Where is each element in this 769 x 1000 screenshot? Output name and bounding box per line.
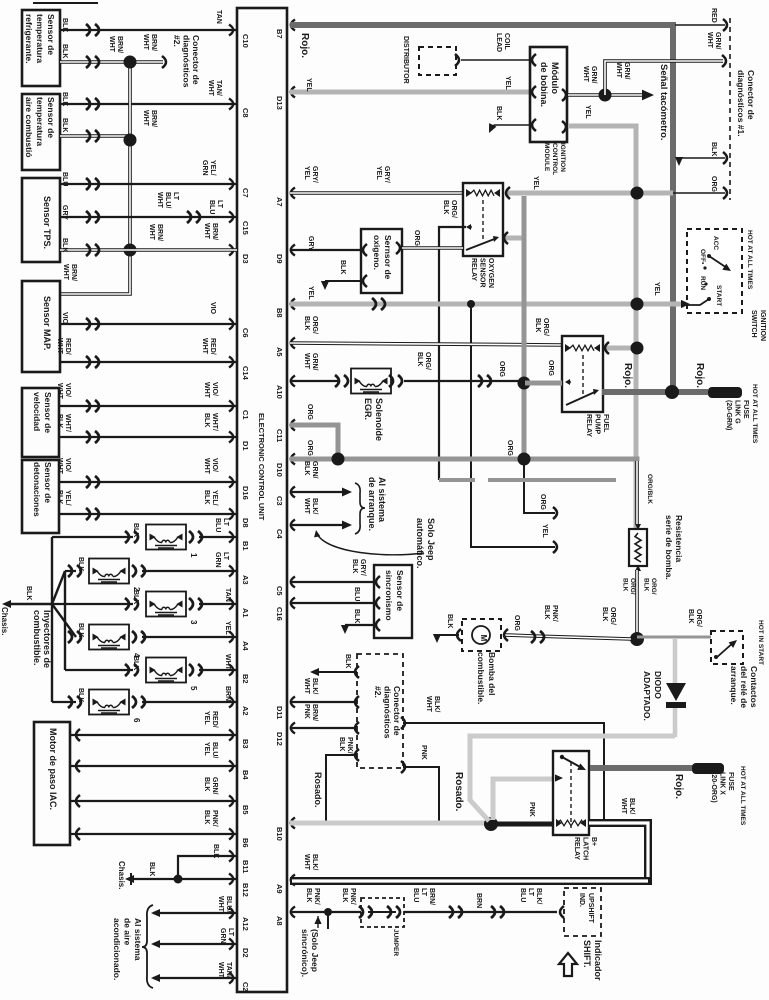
svg-text:Resistencia: Resistencia (674, 515, 684, 563)
svg-text:detonaciones: detonaciones (32, 462, 42, 517)
svg-text:LT: LT (216, 200, 223, 209)
svg-text:D16: D16 (241, 486, 250, 500)
svg-text:Rojo.: Rojo. (694, 363, 705, 388)
svg-text:ORG: ORG (710, 176, 717, 193)
svg-text:6: 6 (132, 718, 141, 723)
svg-text:WHT: WHT (108, 36, 115, 53)
svg-text:ORG: ORG (306, 440, 313, 457)
svg-text:C3: C3 (275, 496, 284, 506)
svg-text:de aire: de aire (123, 918, 133, 946)
svg-text:WHT/: WHT/ (64, 414, 71, 432)
svg-text:Motor de paso IAC.: Motor de paso IAC. (48, 728, 58, 810)
svg-text:diagnósticos: diagnósticos (182, 35, 192, 88)
svg-text:BLK: BLK (534, 318, 541, 332)
svg-text:WHT/: WHT/ (211, 413, 218, 431)
svg-text:IND.: IND. (578, 893, 585, 907)
svg-text:BRN/: BRN/ (428, 888, 435, 905)
svg-text:C10: C10 (241, 34, 250, 48)
svg-text:B2: B2 (241, 674, 250, 684)
svg-text:diagnósticos: diagnósticos (383, 686, 393, 739)
svg-text:BRN/: BRN/ (150, 110, 157, 127)
svg-text:RED/: RED/ (209, 338, 216, 355)
svg-text:B12: B12 (241, 883, 250, 897)
svg-text:Contactos: Contactos (749, 666, 759, 708)
svg-text:BLK: BLK (77, 557, 84, 571)
svg-text:VIO/: VIO/ (64, 458, 71, 472)
svg-text:BRN/: BRN/ (116, 36, 123, 53)
svg-text:Conector de: Conector de (392, 686, 402, 736)
svg-text:BLK: BLK (61, 44, 68, 58)
svg-text:COIL: COIL (503, 33, 510, 50)
svg-text:BLK: BLK (543, 605, 550, 619)
svg-text:WHT: WHT (303, 498, 310, 515)
svg-text:de arranque.: de arranque. (367, 477, 377, 531)
svg-text:refrigerante.: refrigerante. (24, 14, 34, 64)
svg-text:BLK: BLK (203, 810, 210, 824)
svg-text:ORG: ORG (413, 230, 420, 247)
svg-text:C2: C2 (241, 982, 250, 992)
svg-text:B5: B5 (241, 805, 250, 815)
svg-text:A8: A8 (275, 916, 284, 926)
svg-text:BLK: BLK (25, 586, 32, 600)
svg-text:BLK: BLK (61, 92, 68, 106)
svg-text:acondicionado.: acondicionado. (112, 918, 122, 980)
svg-text:(Solo Jeep: (Solo Jeep (310, 929, 320, 972)
svg-text:(20-ORG): (20-ORG) (710, 772, 717, 803)
svg-text:OFF•: OFF• (699, 249, 706, 265)
svg-text:BLK/: BLK/ (433, 696, 440, 712)
svg-text:BLU/: BLU/ (211, 742, 218, 758)
svg-text:C14: C14 (241, 366, 250, 381)
svg-text:C7: C7 (241, 188, 250, 198)
svg-text:Indicador: Indicador (593, 940, 603, 981)
svg-text:YEL: YEL (653, 282, 660, 296)
svg-text:C16: C16 (275, 607, 284, 621)
svg-text:RELAY: RELAY (573, 837, 580, 860)
svg-text:B1: B1 (241, 541, 250, 551)
svg-text:C6: C6 (241, 328, 250, 338)
svg-text:BLU: BLU (519, 888, 526, 902)
svg-text:BLK: BLK (203, 490, 210, 504)
svg-text:HOT IN START: HOT IN START (757, 620, 764, 665)
svg-text:D13: D13 (275, 96, 284, 110)
svg-text:WHT: WHT (224, 654, 231, 671)
svg-text:B4: B4 (241, 770, 250, 780)
svg-text:C4: C4 (275, 529, 284, 539)
svg-text:BRN/: BRN/ (311, 704, 318, 721)
svg-text:del relé de: del relé de (739, 666, 749, 708)
svg-text:#2.: #2. (373, 686, 383, 698)
svg-text:A2: A2 (241, 706, 250, 716)
svg-text:BLK: BLK (203, 413, 210, 427)
svg-text:BLU/: BLU/ (164, 192, 171, 208)
svg-text:ORG: ORG (513, 615, 520, 632)
svg-text:BLK/: BLK/ (628, 798, 635, 814)
svg-text:Bomba del: Bomba del (487, 652, 497, 695)
svg-text:BLU: BLU (353, 587, 360, 601)
svg-text:PNK/: PNK/ (313, 888, 320, 905)
svg-text:BLK: BLK (61, 118, 68, 132)
svg-text:ADAPTADO.: ADAPTADO. (642, 671, 652, 721)
svg-text:PNK/: PNK/ (349, 888, 356, 905)
svg-text:D11: D11 (275, 706, 284, 719)
svg-text:Conector de: Conector de (191, 35, 201, 85)
svg-text:SENSOR: SENSOR (479, 258, 486, 288)
svg-text:automático.: automático. (415, 518, 425, 569)
svg-text:Inyectores de: Inyectores de (42, 610, 52, 668)
svg-text:BLK: BLK (601, 607, 608, 621)
svg-text:FUSE: FUSE (742, 400, 749, 419)
svg-text:ORG/: ORG/ (311, 316, 318, 334)
svg-text:WHT: WHT (615, 62, 622, 79)
svg-text:YEL: YEL (541, 524, 548, 538)
svg-text:ORG/: ORG/ (609, 607, 616, 625)
svg-text:temperatura: temperatura (35, 14, 45, 63)
svg-text:A3: A3 (241, 575, 250, 585)
svg-text:ACC: ACC (712, 236, 719, 250)
svg-text:EGR.: EGR. (363, 398, 373, 420)
svg-text:Rosado.: Rosado. (313, 772, 323, 808)
svg-text:PNK/: PNK/ (551, 605, 558, 622)
svg-text:Sensor de: Sensor de (46, 14, 56, 55)
svg-text:BLK: BLK (353, 609, 360, 623)
svg-text:VIO/: VIO/ (211, 458, 218, 472)
svg-text:WHT: WHT (203, 382, 210, 399)
svg-text:WHT: WHT (303, 678, 310, 695)
svg-text:B7: B7 (275, 29, 284, 39)
svg-text:Solenoide: Solenoide (374, 398, 384, 441)
svg-text:YEL: YEL (584, 105, 591, 119)
svg-text:BRN/: BRN/ (156, 224, 163, 241)
svg-text:WHT: WHT (203, 223, 210, 240)
svg-text:PNK: PNK (528, 802, 535, 817)
svg-text:DISTRIBUTOR: DISTRIBUTOR (402, 36, 409, 84)
svg-text:WHT: WHT (142, 110, 149, 127)
svg-text:Sensor de: Sensor de (43, 392, 53, 433)
svg-text:BLU/: BLU/ (225, 896, 232, 912)
svg-text:LT: LT (527, 888, 534, 897)
svg-text:LT: LT (420, 888, 427, 897)
svg-text:Sensor de: Sensor de (395, 570, 405, 611)
svg-text:Rojo.: Rojo. (673, 774, 684, 799)
svg-text:WHT: WHT (582, 66, 589, 83)
svg-text:LT: LT (227, 928, 234, 937)
svg-text:BLK: BLK (212, 844, 219, 858)
svg-text:LINK G: LINK G (734, 400, 741, 424)
svg-text:A7: A7 (275, 197, 284, 207)
svg-text:BLK: BLK (77, 688, 84, 702)
svg-text:BLK: BLK (132, 523, 139, 537)
svg-text:WHT: WHT (217, 962, 224, 979)
svg-text:VIO: VIO (61, 312, 68, 325)
svg-text:GRN: GRN (214, 552, 221, 568)
svg-text:WHT: WHT (62, 264, 69, 281)
svg-text:YEL: YEL (532, 176, 539, 190)
svg-text:oxigeno.: oxigeno. (372, 235, 382, 270)
svg-text:YEL/: YEL/ (211, 490, 218, 506)
svg-text:ORG/: ORG/ (424, 352, 431, 370)
svg-text:BLU: BLU (208, 200, 215, 214)
svg-text:BLK: BLK (61, 18, 68, 32)
svg-text:ORG: ORG (498, 361, 505, 378)
svg-text:Rojo.: Rojo. (622, 363, 633, 388)
svg-text:WHT: WHT (207, 80, 214, 97)
svg-text:BRN/: BRN/ (211, 223, 218, 240)
svg-text:GRN: GRN (219, 928, 226, 944)
svg-text:(20-GRN): (20-GRN) (725, 400, 732, 430)
svg-text:OXYGEN: OXYGEN (487, 258, 494, 288)
svg-text:ORG: ORG (547, 360, 554, 377)
svg-text:Chasis.: Chasis. (117, 861, 126, 889)
svg-text:GRN/: GRN/ (623, 62, 630, 80)
svg-text:ORG/: ORG/ (629, 578, 636, 595)
svg-text:WHT: WHT (56, 338, 63, 355)
svg-text:GRY/: GRY/ (383, 166, 390, 183)
svg-text:UPSHIFT: UPSHIFT (587, 893, 594, 924)
svg-text:WHT: WHT (142, 34, 149, 51)
svg-text:RED: RED (710, 8, 717, 23)
svg-text:BLU: BLU (61, 172, 68, 186)
svg-text:BLK: BLK (341, 888, 348, 902)
svg-text:Módulo: Módulo (550, 62, 560, 94)
svg-text:BLK: BLK (148, 862, 155, 876)
svg-text:GRN/: GRN/ (311, 353, 318, 371)
svg-text:WHT: WHT (56, 458, 63, 475)
svg-text:GRY/: GRY/ (359, 559, 366, 576)
svg-text:de bobina.: de bobina. (539, 62, 549, 107)
svg-text:GRN/: GRN/ (590, 66, 597, 84)
svg-text:BLK: BLK (132, 590, 139, 604)
svg-text:Chasis.: Chasis. (0, 607, 9, 635)
svg-text:YEL: YEL (305, 78, 312, 92)
svg-text:5: 5 (189, 686, 198, 691)
svg-text:GRY: GRY (307, 236, 314, 251)
svg-text:YEL: YEL (203, 742, 210, 756)
svg-text:WHT: WHT (56, 383, 63, 400)
svg-text:YEL: YEL (303, 166, 310, 180)
svg-text:1: 1 (189, 553, 198, 558)
svg-text:ORG/: ORG/ (450, 200, 457, 218)
svg-text:WHT: WHT (217, 896, 224, 913)
svg-text:CONTROL: CONTROL (551, 143, 558, 175)
svg-text:BLK: BLK (710, 142, 717, 156)
svg-text:GRN: GRN (201, 160, 208, 176)
svg-text:ORG: ORG (306, 404, 313, 421)
svg-text:BLK: BLK (132, 656, 139, 670)
svg-text:HOT AT ALL TIMES: HOT AT ALL TIMES (751, 384, 758, 444)
svg-text:RED/: RED/ (64, 338, 71, 355)
svg-text:BLK: BLK (446, 614, 453, 628)
svg-text:B3: B3 (241, 739, 250, 749)
svg-text:BLK: BLK (61, 238, 68, 252)
svg-text:WHT: WHT (201, 338, 208, 355)
svg-text:VIO: VIO (209, 302, 216, 315)
svg-text:C15: C15 (241, 221, 250, 235)
svg-text:BLK: BLK (339, 260, 346, 274)
svg-text:ORG/BLK: ORG/BLK (646, 474, 653, 504)
svg-text:Sernsor de: Sernsor de (383, 235, 393, 280)
svg-text:BLK: BLK (303, 316, 310, 330)
svg-text:Sensor TPS.: Sensor TPS. (42, 196, 52, 249)
svg-text:RED/: RED/ (211, 711, 218, 728)
svg-text:A9: A9 (275, 884, 284, 894)
svg-text:A5: A5 (275, 347, 284, 357)
svg-text:ORG/: ORG/ (650, 578, 657, 595)
svg-text:BLK: BLK (442, 200, 449, 214)
svg-text:BLK/: BLK/ (311, 854, 318, 870)
svg-text:ELECTRONIC CONTROL UNIT: ELECTRONIC CONTROL UNIT (257, 413, 266, 521)
svg-text:WHT: WHT (203, 458, 210, 475)
svg-text:TAN/: TAN/ (215, 80, 222, 96)
svg-text:BLK: BLK (416, 352, 423, 366)
svg-text:D8: D8 (241, 518, 250, 528)
svg-text:C11: C11 (275, 429, 284, 442)
svg-text:BLK: BLK (56, 414, 63, 428)
svg-text:GRY: GRY (61, 205, 68, 220)
svg-text:GRN/: GRN/ (714, 32, 721, 50)
svg-text:diagnósticos #1.: diagnósticos #1. (736, 70, 746, 137)
svg-text:A4: A4 (241, 641, 250, 651)
svg-text:HOT AT ALL TIMES: HOT AT ALL TIMES (746, 230, 753, 290)
svg-text:Al sistema: Al sistema (377, 477, 387, 523)
svg-text:C1: C1 (241, 410, 250, 420)
svg-text:BRN/: BRN/ (70, 264, 77, 281)
svg-text:B6: B6 (241, 838, 250, 848)
svg-text:BLK: BLK (344, 654, 351, 668)
svg-text:Al sistema: Al sistema (133, 918, 143, 961)
svg-text:B11: B11 (241, 860, 250, 873)
svg-text:VIO/: VIO/ (64, 383, 71, 397)
svg-text:PNK/: PNK/ (211, 810, 218, 827)
svg-text:LEAD: LEAD (495, 33, 502, 52)
svg-text:LATCH: LATCH (582, 837, 589, 860)
svg-text:A1: A1 (241, 608, 250, 618)
svg-text:LT: LT (222, 518, 229, 527)
svg-text:SHIFT.: SHIFT. (582, 940, 592, 968)
svg-text:ORG/: ORG/ (695, 609, 702, 627)
svg-text:MODULE: MODULE (543, 143, 550, 172)
svg-text:C8: C8 (241, 108, 250, 118)
svg-text:VIO/: VIO/ (211, 382, 218, 396)
svg-text:B8: B8 (275, 308, 284, 318)
svg-text:BLU: BLU (412, 888, 419, 902)
svg-text:D1: D1 (241, 441, 250, 451)
svg-text:LT: LT (172, 192, 179, 201)
svg-text:BRN: BRN (475, 893, 482, 908)
svg-text:A10: A10 (275, 385, 284, 399)
svg-text:sincrónico).: sincrónico). (300, 929, 310, 977)
svg-text:BLK: BLK (338, 737, 345, 751)
svg-text:YEL: YEL (375, 166, 382, 180)
svg-text:SWITCH: SWITCH (750, 310, 757, 338)
svg-text:Conector de: Conector de (746, 70, 756, 120)
svg-text:JUMPER: JUMPER (392, 929, 399, 956)
svg-text:B+: B+ (590, 837, 597, 846)
svg-text:D9: D9 (275, 254, 284, 264)
svg-text:D3: D3 (241, 254, 250, 264)
svg-text:Sensor MAP.: Sensor MAP. (42, 296, 52, 350)
svg-text:sincronismo: sincronismo (384, 570, 394, 621)
svg-text:WHT: WHT (303, 854, 310, 871)
svg-text:velocidad: velocidad (32, 392, 42, 431)
svg-text:Solo Jeep: Solo Jeep (426, 518, 436, 561)
svg-text:GRN/: GRN/ (311, 461, 318, 479)
svg-text:BLK: BLK (203, 777, 210, 791)
svg-text:ORG: ORG (539, 494, 546, 511)
svg-text:WHT: WHT (425, 696, 432, 713)
svg-text:BLK: BLK (303, 461, 310, 475)
svg-text:3: 3 (189, 620, 198, 625)
svg-text:C5: C5 (275, 586, 284, 596)
svg-text:PNK/: PNK/ (346, 737, 353, 754)
svg-text:BLK: BLK (622, 578, 629, 592)
svg-text:WHT: WHT (706, 32, 713, 49)
svg-text:Rosado.: Rosado. (453, 772, 464, 812)
svg-text:BRN: BRN (224, 686, 231, 701)
svg-text:D2: D2 (241, 948, 250, 958)
svg-text:temperatura: temperatura (35, 97, 45, 146)
svg-text:RELAY: RELAY (585, 414, 592, 437)
svg-text:combustible.: combustible. (476, 652, 486, 704)
svg-text:BLK: BLK (495, 106, 502, 120)
svg-text:IGNITION: IGNITION (759, 310, 766, 341)
svg-text:BRN/: BRN/ (150, 34, 157, 51)
svg-text:M: M (479, 635, 488, 642)
svg-text:YEL: YEL (203, 711, 210, 725)
svg-text:BLK/: BLK/ (311, 498, 318, 514)
svg-text:DIODO: DIODO (653, 671, 663, 699)
svg-text:RELAY: RELAY (470, 258, 477, 281)
svg-text:BLU: BLU (214, 518, 221, 532)
svg-text:BLK: BLK (77, 623, 84, 637)
svg-text:TAN: TAN (215, 10, 222, 24)
svg-text:WHT: WHT (148, 224, 155, 241)
svg-text:WHT: WHT (303, 353, 310, 370)
svg-text:A12: A12 (241, 917, 250, 931)
svg-text:PUMP: PUMP (594, 414, 601, 435)
svg-text:Señal tacómetro.: Señal tacómetro. (658, 64, 669, 141)
svg-text:PNK: PNK (303, 704, 310, 719)
svg-text:TAN/: TAN/ (225, 962, 232, 978)
svg-text:aire combustió: aire combustió (24, 97, 34, 157)
svg-text:YEL: YEL (224, 621, 231, 635)
svg-text:YEL/: YEL/ (209, 160, 216, 176)
svg-text:D12: D12 (275, 732, 284, 746)
svg-text:HOT AT ALL TIMES: HOT AT ALL TIMES (739, 766, 746, 826)
svg-text:arranque.: arranque. (729, 666, 739, 705)
svg-text:BLK/: BLK/ (311, 678, 318, 694)
svg-text:ORG: ORG (506, 440, 513, 457)
svg-text:LINK X: LINK X (719, 772, 726, 795)
svg-text:BLK: BLK (687, 609, 694, 623)
svg-text:Sensor de: Sensor de (43, 462, 53, 503)
svg-text:START: START (715, 285, 722, 306)
svg-text:Sensor de: Sensor de (46, 97, 56, 138)
svg-text:GRY/: GRY/ (311, 166, 318, 183)
svg-text:GRN/: GRN/ (211, 777, 218, 795)
svg-text:BLK: BLK (643, 578, 650, 592)
svg-text:BLK: BLK (351, 559, 358, 573)
svg-text:B10: B10 (275, 827, 284, 841)
svg-text:LT: LT (222, 552, 229, 561)
svg-text:FUEL: FUEL (602, 414, 609, 433)
svg-text:FUSE: FUSE (727, 772, 734, 791)
svg-text:YEL: YEL (307, 286, 314, 300)
svg-text:BLK/: BLK/ (535, 888, 542, 904)
svg-text:combustible.: combustible. (32, 610, 42, 666)
svg-text:serie de bomba.: serie de bomba. (664, 515, 674, 580)
svg-text:Rojo.: Rojo. (299, 33, 310, 58)
